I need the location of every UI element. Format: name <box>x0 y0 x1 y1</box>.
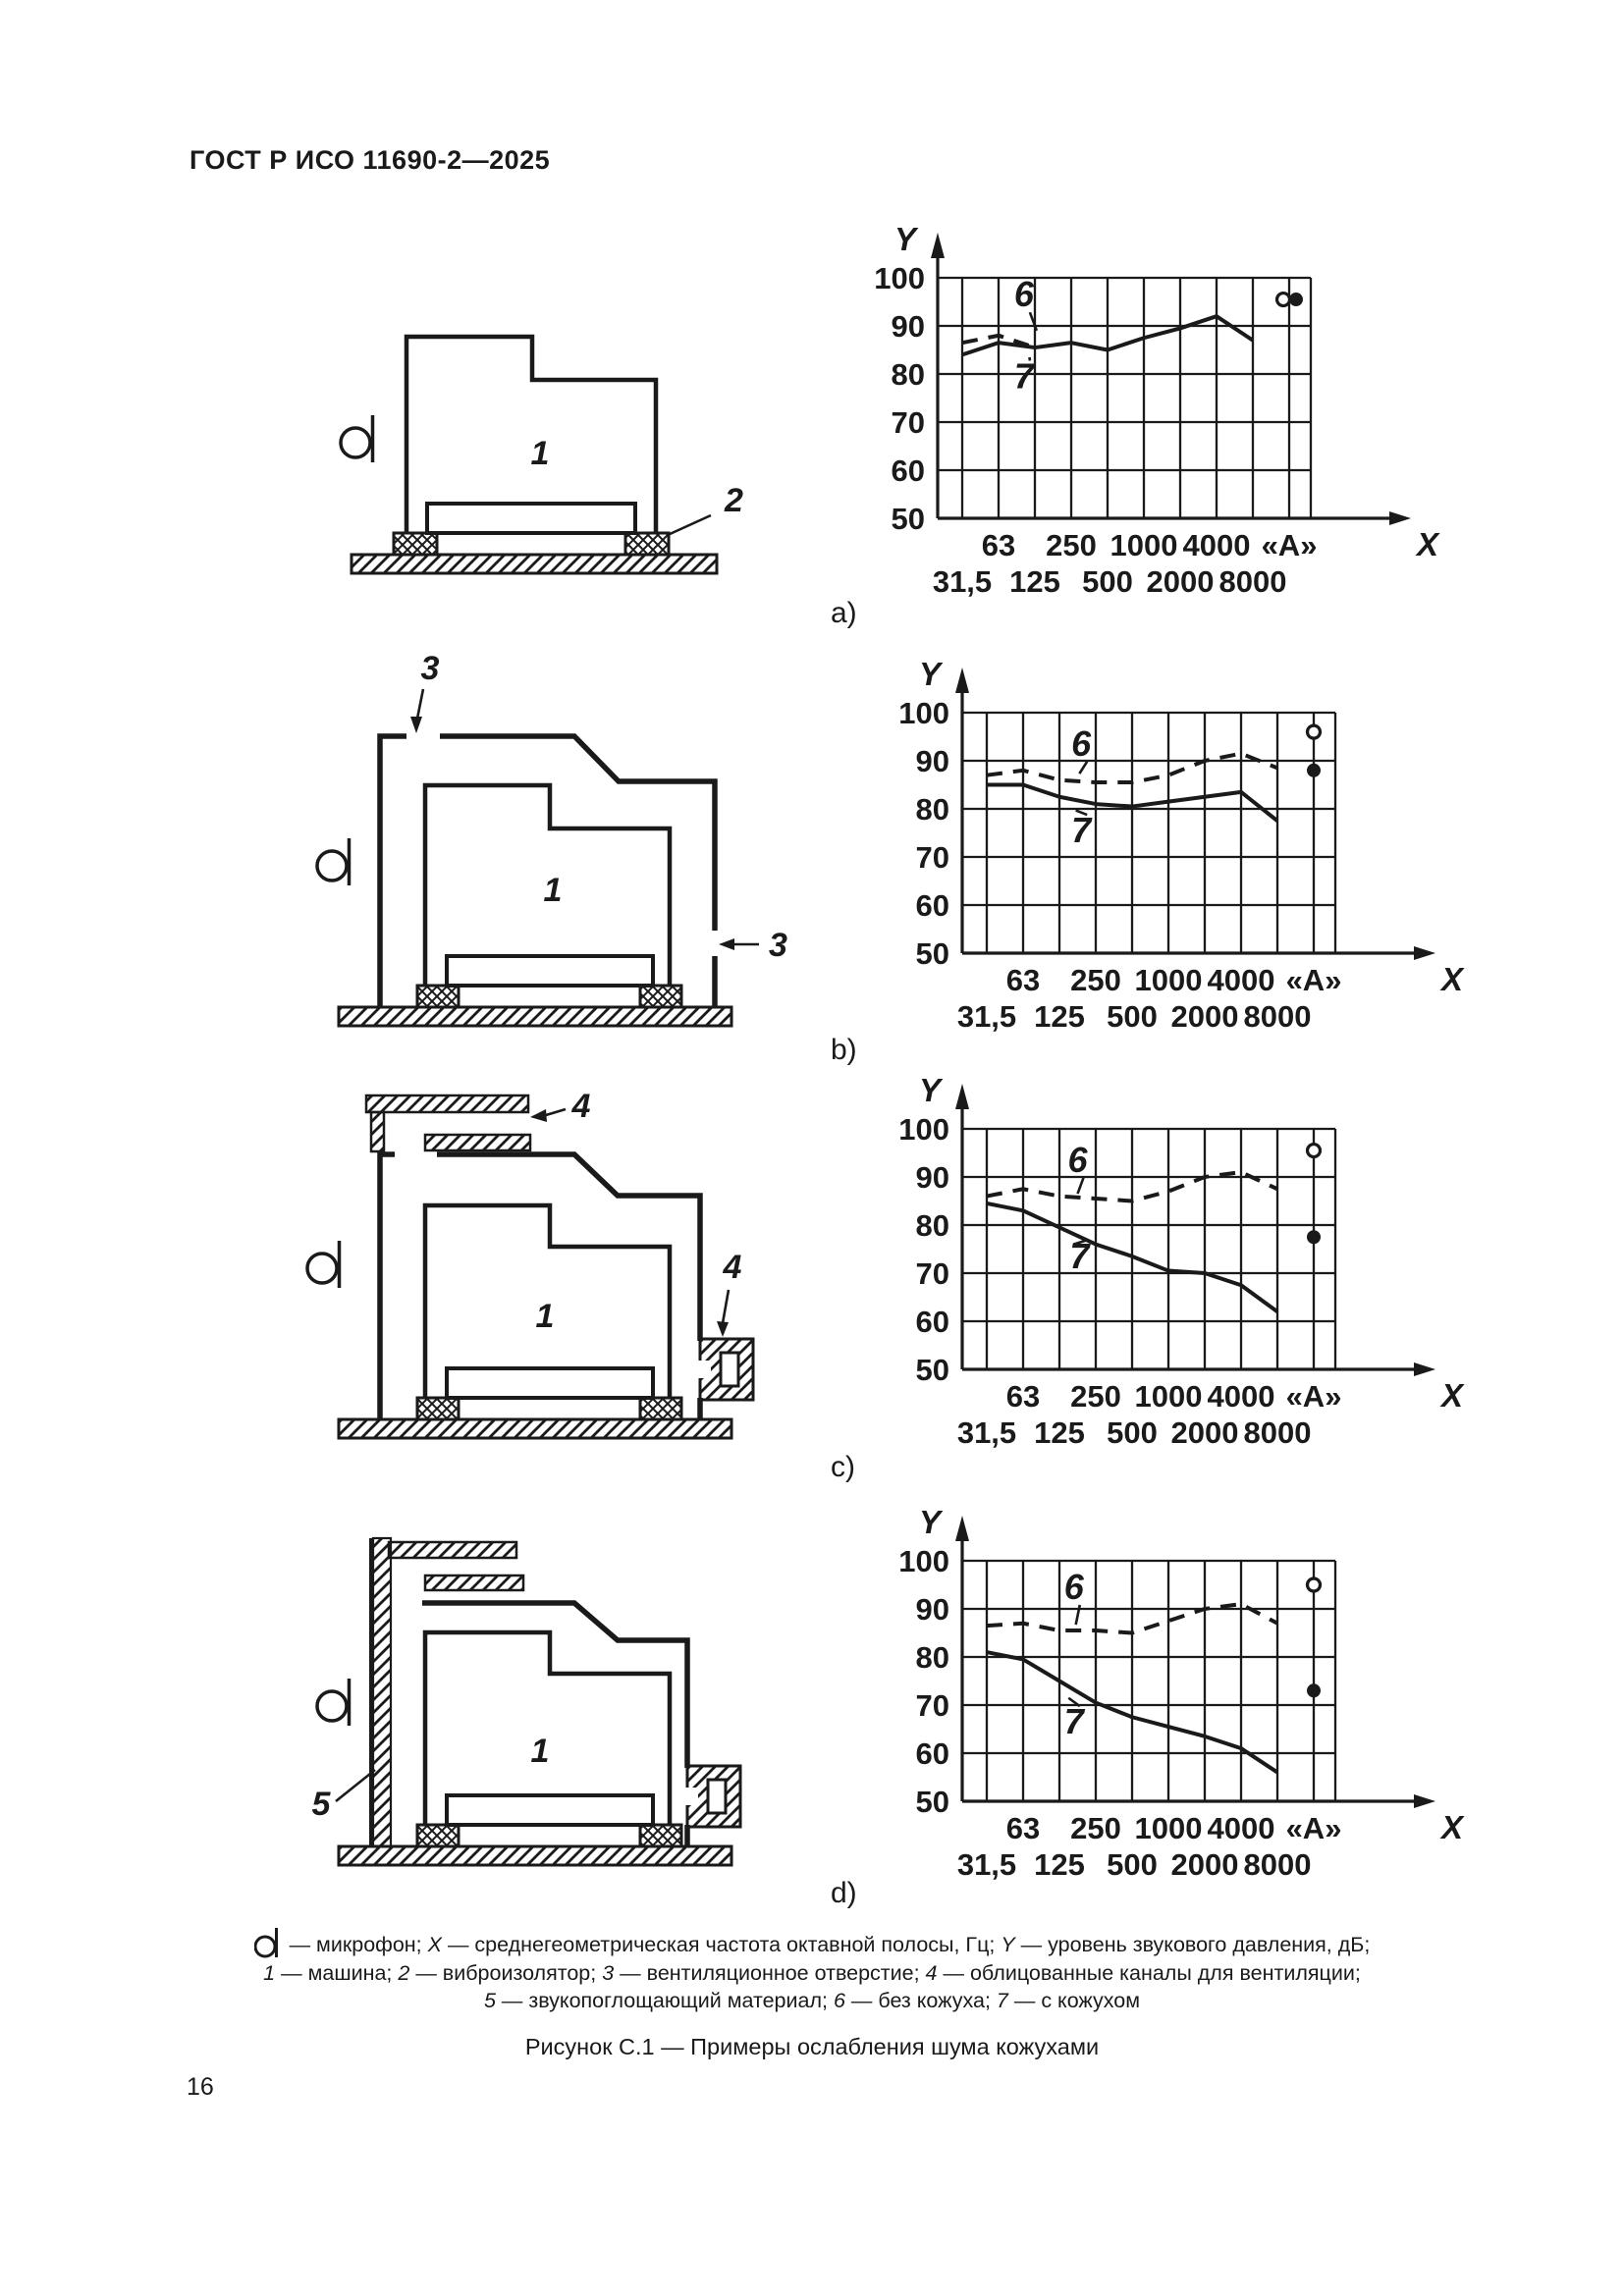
series-7-callout: 7 <box>1014 355 1036 396</box>
arrow-line <box>546 1109 566 1115</box>
vibration-isolator-left <box>417 986 459 1007</box>
axis-tick-labels: 10090807060506325010004000«А»31,51255002… <box>898 696 1341 1034</box>
machine-label: 1 <box>544 872 563 909</box>
svg-text:31,5: 31,5 <box>933 564 992 599</box>
svg-text:4000: 4000 <box>1208 1379 1275 1414</box>
svg-text:1000: 1000 <box>1135 1811 1203 1845</box>
callout-leader-line <box>1078 1178 1084 1194</box>
machine-base <box>427 504 635 533</box>
a-weighted-open-marker <box>1308 1145 1321 1157</box>
svg-text:«А»: «А» <box>1286 1811 1342 1845</box>
svg-text:4000: 4000 <box>1183 528 1251 562</box>
lined-duct-top-side <box>371 1112 384 1151</box>
duct-label: 4 <box>723 1249 742 1286</box>
absorber-label: 5 <box>312 1786 332 1823</box>
microphone-icon <box>254 1926 282 1959</box>
series-6-callout: 6 <box>1067 1140 1088 1180</box>
ground <box>339 1007 731 1026</box>
y-axis-title: Y <box>919 1072 944 1108</box>
lined-duct-top-outer-plate <box>389 1542 516 1558</box>
vibration-isolator-left <box>394 533 437 555</box>
chart-axes <box>955 1084 1435 1376</box>
x-axis-title: X <box>1439 961 1465 997</box>
ground <box>352 555 717 573</box>
microphone-icon <box>317 1679 350 1726</box>
caption-line: 5 — звукопоглощающий материал; 6 — без к… <box>157 1987 1467 2014</box>
svg-text:50: 50 <box>892 502 925 536</box>
svg-text:500: 500 <box>1082 564 1133 599</box>
caption-line: — микрофон; X — среднегеометрическая час… <box>157 1926 1467 1959</box>
vent-callout-right: 3 <box>719 927 787 964</box>
a-weighted-open-marker <box>1308 1578 1321 1591</box>
lined-duct-right-box <box>682 1766 740 1827</box>
y-axis-title: Y <box>919 656 944 692</box>
isolator-leader-line <box>668 515 711 535</box>
document-header: ГОСТ Р ИСО 11690-2—2025 <box>189 145 550 176</box>
series-6-callout: 6 <box>1064 1567 1085 1607</box>
figure-legend: — микрофон; X — среднегеометрическая час… <box>157 1926 1467 2014</box>
duct-label: 4 <box>571 1088 591 1125</box>
panel-label-a: a) <box>831 597 857 630</box>
chart-d-svg: YX10090807060506325010004000«А»31,512550… <box>893 1504 1483 1936</box>
svg-text:125: 125 <box>1009 564 1060 599</box>
svg-text:1000: 1000 <box>1110 528 1178 562</box>
svg-text:90: 90 <box>892 309 925 344</box>
x-axis-title: X <box>1439 1377 1465 1414</box>
diagram-a-machine-no-enclosure: 1 2 <box>226 221 835 643</box>
machine-label: 1 <box>536 1298 555 1335</box>
svg-text:8000: 8000 <box>1244 999 1312 1034</box>
svg-text:100: 100 <box>898 696 949 730</box>
y-axis-title: Y <box>894 221 919 257</box>
diagram-d-absorbing-lining: 1 5 <box>226 1477 835 1899</box>
svg-text:8000: 8000 <box>1244 1415 1312 1450</box>
figure-title: Рисунок С.1 — Примеры ослабления шума ко… <box>157 2034 1467 2060</box>
a-weighted-filled-marker <box>1289 293 1303 306</box>
lined-duct-right-box <box>695 1339 753 1400</box>
series-6-callout: 6 <box>1014 274 1035 314</box>
arrow-head-icon <box>717 1321 729 1337</box>
svg-text:500: 500 <box>1107 999 1158 1034</box>
svg-text:250: 250 <box>1070 963 1121 997</box>
vent-label: 3 <box>421 650 440 687</box>
svg-text:100: 100 <box>898 1112 949 1147</box>
vibration-isolator-right <box>640 1825 681 1846</box>
chart-axes <box>931 233 1411 525</box>
vent-label: 3 <box>769 927 787 964</box>
svg-text:50: 50 <box>916 936 949 971</box>
svg-text:«А»: «А» <box>1286 963 1342 997</box>
chart-a: YX10090807060506325010004000«А»31,512550… <box>869 221 1458 653</box>
sound-absorbing-lining <box>373 1538 391 1846</box>
machine-base <box>447 956 653 986</box>
chart-a-svg: YX10090807060506325010004000«А»31,512550… <box>869 221 1458 653</box>
svg-text:2000: 2000 <box>1171 1415 1239 1450</box>
svg-text:2000: 2000 <box>1171 999 1239 1034</box>
svg-text:2000: 2000 <box>1171 1847 1239 1882</box>
svg-text:31,5: 31,5 <box>957 1415 1016 1450</box>
a-weighted-open-marker <box>1308 725 1321 738</box>
svg-text:80: 80 <box>892 357 925 392</box>
svg-text:250: 250 <box>1046 528 1097 562</box>
document-page: ГОСТ Р ИСО 11690-2—2025 1 2 <box>0 0 1624 2296</box>
series-7-callout: 7 <box>1064 1701 1086 1741</box>
series-6-callout: 6 <box>1071 723 1092 764</box>
chart-b: YX10090807060506325010004000«А»31,512550… <box>893 656 1483 1088</box>
page-number: 16 <box>187 2073 214 2102</box>
microphone-icon <box>341 415 373 462</box>
vibration-isolator-left <box>417 1398 459 1419</box>
panel-label-c: c) <box>831 1451 855 1484</box>
diagram-b-enclosure-vents: 1 3 3 <box>226 638 835 1060</box>
chart-grid <box>962 1561 1335 1801</box>
duct-callout-right: 4 <box>717 1249 742 1337</box>
svg-text:100: 100 <box>874 261 925 295</box>
svg-text:60: 60 <box>916 1305 949 1339</box>
diagram-c-lined-ducts: 1 4 4 <box>226 1050 835 1472</box>
svg-text:250: 250 <box>1070 1379 1121 1414</box>
svg-text:50: 50 <box>916 1353 949 1387</box>
caption-line: 1 — машина; 2 — виброизолятор; 3 — венти… <box>157 1959 1467 1987</box>
svg-text:500: 500 <box>1107 1415 1158 1450</box>
vibration-isolator-left <box>417 1825 459 1846</box>
microphone-icon <box>307 1241 340 1288</box>
absorber-callout: 5 <box>312 1770 375 1823</box>
chart-grid <box>962 1129 1335 1369</box>
duct-callout-top: 4 <box>530 1088 591 1125</box>
panel-label-b: b) <box>831 1034 857 1067</box>
svg-text:1000: 1000 <box>1135 1379 1203 1414</box>
lined-duct-top-outer-plate <box>366 1095 528 1112</box>
svg-text:4000: 4000 <box>1208 1811 1275 1845</box>
svg-text:8000: 8000 <box>1219 564 1287 599</box>
chart-c-svg: YX10090807060506325010004000«А»31,512550… <box>893 1072 1483 1504</box>
vibration-isolator-right <box>640 1398 681 1419</box>
chart-grid <box>962 713 1335 953</box>
a-weighted-filled-marker <box>1307 1683 1321 1697</box>
panel-label-d: d) <box>831 1877 857 1910</box>
chart-axes <box>955 667 1435 960</box>
arrow-head-icon <box>719 938 734 950</box>
svg-text:80: 80 <box>916 792 949 827</box>
svg-text:125: 125 <box>1034 1847 1085 1882</box>
svg-text:8000: 8000 <box>1244 1847 1312 1882</box>
arrow-head-icon <box>530 1109 547 1122</box>
microphone-icon <box>317 838 350 885</box>
svg-text:63: 63 <box>1006 1811 1040 1845</box>
machine-label: 1 <box>531 1733 550 1770</box>
svg-text:70: 70 <box>892 405 925 440</box>
ground <box>339 1846 731 1865</box>
lined-duct-top-inner-plate <box>425 1575 523 1590</box>
vibration-isolator-right <box>640 986 681 1007</box>
svg-text:80: 80 <box>916 1640 949 1675</box>
vibration-isolator-right <box>625 533 669 555</box>
axis-tick-labels: 10090807060506325010004000«А»31,51255002… <box>874 261 1317 599</box>
svg-text:70: 70 <box>916 1688 949 1723</box>
svg-text:90: 90 <box>916 744 949 778</box>
machine-base <box>447 1795 653 1825</box>
isolator-label: 2 <box>724 482 743 519</box>
lined-duct-top-inner-plate <box>425 1135 530 1150</box>
arrow-head-icon <box>410 717 422 733</box>
svg-text:125: 125 <box>1034 1415 1085 1450</box>
svg-text:125: 125 <box>1034 999 1085 1034</box>
machine-label: 1 <box>531 435 550 472</box>
ground <box>339 1419 731 1438</box>
svg-text:«А»: «А» <box>1262 528 1318 562</box>
svg-text:500: 500 <box>1107 1847 1158 1882</box>
svg-text:2000: 2000 <box>1147 564 1215 599</box>
a-weighted-filled-marker <box>1307 1230 1321 1244</box>
x-axis-title: X <box>1439 1809 1465 1845</box>
vent-callout-top: 3 <box>410 650 440 733</box>
svg-text:90: 90 <box>916 1160 949 1195</box>
svg-text:50: 50 <box>916 1785 949 1819</box>
a-weighted-open-marker <box>1277 294 1290 306</box>
svg-text:90: 90 <box>916 1592 949 1627</box>
svg-text:63: 63 <box>982 528 1015 562</box>
svg-text:60: 60 <box>916 1736 949 1771</box>
x-axis-title: X <box>1415 526 1440 562</box>
svg-text:63: 63 <box>1006 1379 1040 1414</box>
axis-tick-labels: 10090807060506325010004000«А»31,51255002… <box>898 1112 1341 1450</box>
svg-text:70: 70 <box>916 840 949 875</box>
machine-base <box>447 1368 653 1398</box>
arrow-line <box>417 689 423 719</box>
svg-text:80: 80 <box>916 1208 949 1243</box>
svg-text:60: 60 <box>892 454 925 488</box>
svg-text:100: 100 <box>898 1544 949 1578</box>
svg-text:4000: 4000 <box>1208 963 1275 997</box>
chart-c: YX10090807060506325010004000«А»31,512550… <box>893 1072 1483 1504</box>
chart-d: YX10090807060506325010004000«А»31,512550… <box>893 1504 1483 1936</box>
arrow-line <box>723 1290 729 1323</box>
svg-text:70: 70 <box>916 1256 949 1291</box>
chart-b-svg: YX10090807060506325010004000«А»31,512550… <box>893 656 1483 1088</box>
a-weighted-filled-marker <box>1307 764 1321 777</box>
chart-grid <box>938 278 1311 518</box>
svg-text:60: 60 <box>916 888 949 923</box>
svg-text:31,5: 31,5 <box>957 999 1016 1034</box>
series-7-callout: 7 <box>1071 810 1093 850</box>
svg-text:250: 250 <box>1070 1811 1121 1845</box>
svg-text:1000: 1000 <box>1135 963 1203 997</box>
y-axis-title: Y <box>919 1504 944 1540</box>
svg-text:«А»: «А» <box>1286 1379 1342 1414</box>
svg-text:63: 63 <box>1006 963 1040 997</box>
svg-text:31,5: 31,5 <box>957 1847 1016 1882</box>
